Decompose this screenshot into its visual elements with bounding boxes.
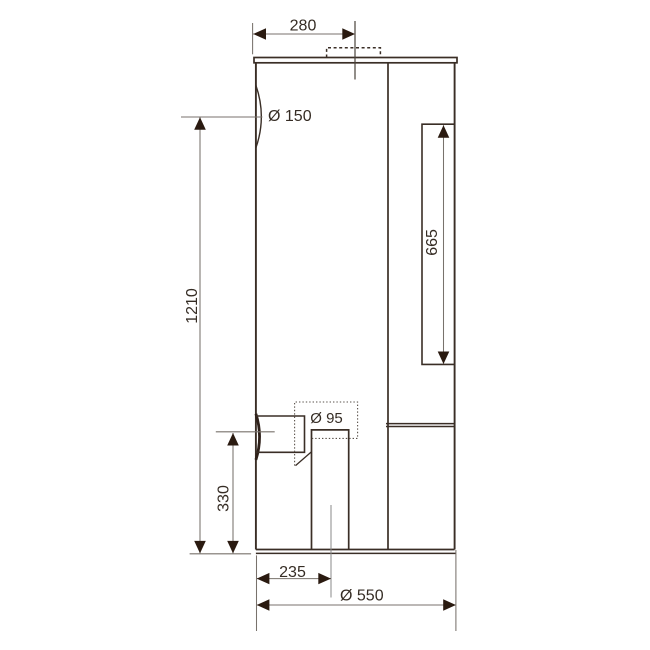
svg-text:Ø 95: Ø 95 <box>310 410 343 427</box>
svg-text:235: 235 <box>279 564 306 581</box>
svg-text:330: 330 <box>216 485 233 512</box>
svg-text:665: 665 <box>424 229 441 256</box>
svg-text:1210: 1210 <box>184 288 201 324</box>
svg-text:280: 280 <box>290 18 317 35</box>
svg-text:Ø 550: Ø 550 <box>340 588 384 605</box>
svg-text:Ø 150: Ø 150 <box>268 108 312 125</box>
